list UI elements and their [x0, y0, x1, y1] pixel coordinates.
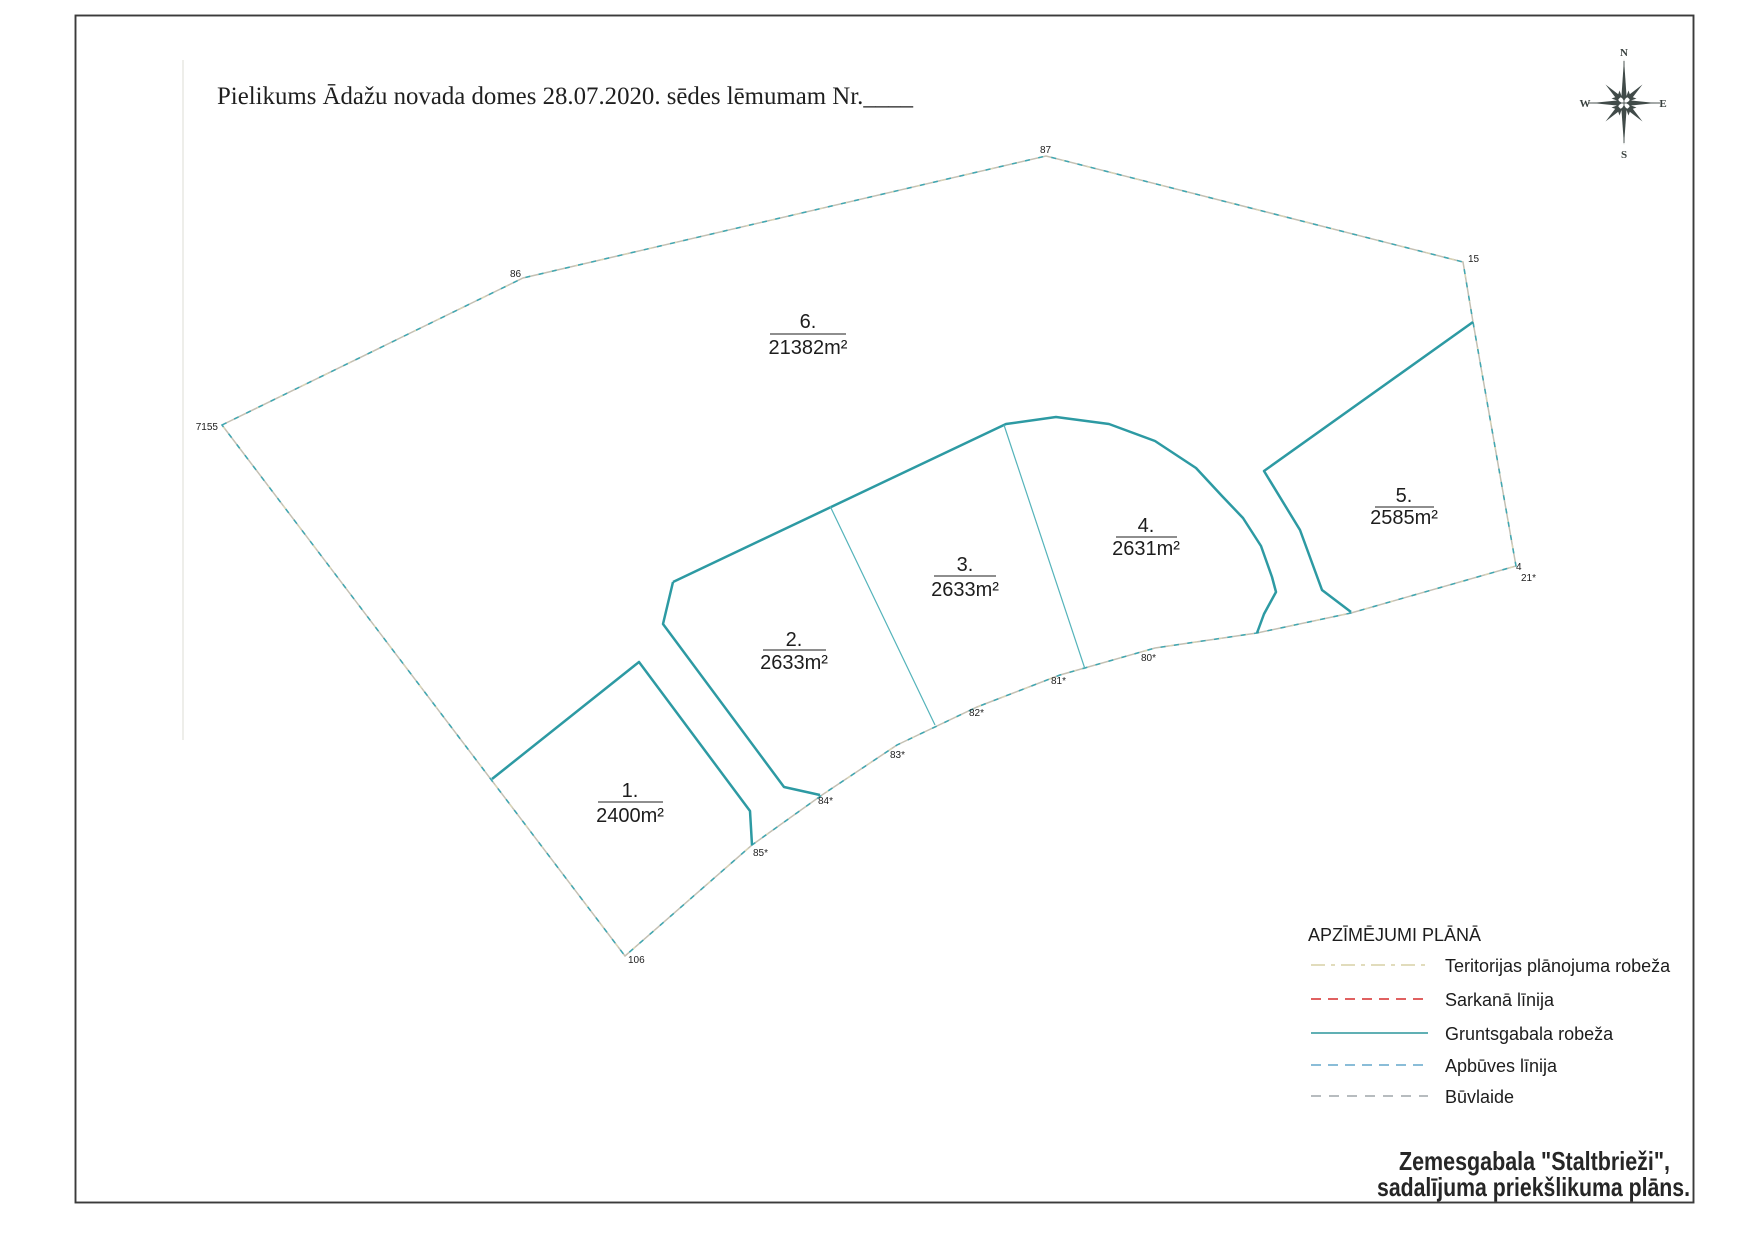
svg-text:2633m²: 2633m²	[760, 652, 828, 674]
svg-text:87: 87	[1040, 145, 1052, 156]
svg-text:APZĪMĒJUMI PLĀNĀ: APZĪMĒJUMI PLĀNĀ	[1308, 925, 1481, 945]
svg-text:106: 106	[628, 955, 645, 966]
svg-text:Gruntsgabala robeža: Gruntsgabala robeža	[1445, 1024, 1614, 1044]
svg-text:86: 86	[510, 269, 522, 280]
svg-text:6.: 6.	[800, 311, 817, 333]
svg-text:Sarkanā līnija: Sarkanā līnija	[1445, 990, 1555, 1010]
svg-text:7155: 7155	[196, 422, 219, 433]
svg-text:W: W	[1580, 98, 1591, 110]
svg-text:2400m²: 2400m²	[596, 805, 664, 827]
svg-text:3.: 3.	[957, 554, 974, 576]
svg-text:2633m²: 2633m²	[931, 579, 999, 601]
svg-text:15: 15	[1468, 254, 1480, 265]
svg-text:S: S	[1621, 149, 1627, 161]
svg-text:Būvlaide: Būvlaide	[1445, 1087, 1514, 1107]
svg-text:84*: 84*	[818, 796, 833, 807]
svg-text:21382m²: 21382m²	[769, 337, 848, 359]
svg-text:2631m²: 2631m²	[1112, 538, 1180, 560]
svg-text:85*: 85*	[753, 848, 768, 859]
svg-text:82*: 82*	[969, 708, 984, 719]
svg-text:2585m²: 2585m²	[1370, 507, 1438, 529]
svg-text:4: 4	[1516, 562, 1522, 573]
svg-text:5.: 5.	[1396, 485, 1413, 507]
svg-text:2.: 2.	[786, 629, 803, 651]
svg-text:Pielikums Ādažu novada domes 2: Pielikums Ādažu novada domes 28.07.2020.…	[217, 83, 913, 110]
svg-text:Apbūves līnija: Apbūves līnija	[1445, 1056, 1558, 1076]
svg-text:4.: 4.	[1138, 515, 1155, 537]
svg-text:E: E	[1659, 98, 1666, 110]
svg-text:83*: 83*	[890, 750, 905, 761]
svg-text:Teritorijas plānojuma robeža: Teritorijas plānojuma robeža	[1445, 956, 1671, 976]
svg-text:N: N	[1620, 47, 1628, 59]
svg-text:21*: 21*	[1521, 573, 1536, 584]
svg-text:sadalījuma priekšlikuma plāns.: sadalījuma priekšlikuma plāns.	[1377, 1172, 1690, 1202]
svg-text:1.: 1.	[622, 780, 639, 802]
svg-text:81*: 81*	[1051, 676, 1066, 687]
svg-text:80*: 80*	[1141, 653, 1156, 664]
